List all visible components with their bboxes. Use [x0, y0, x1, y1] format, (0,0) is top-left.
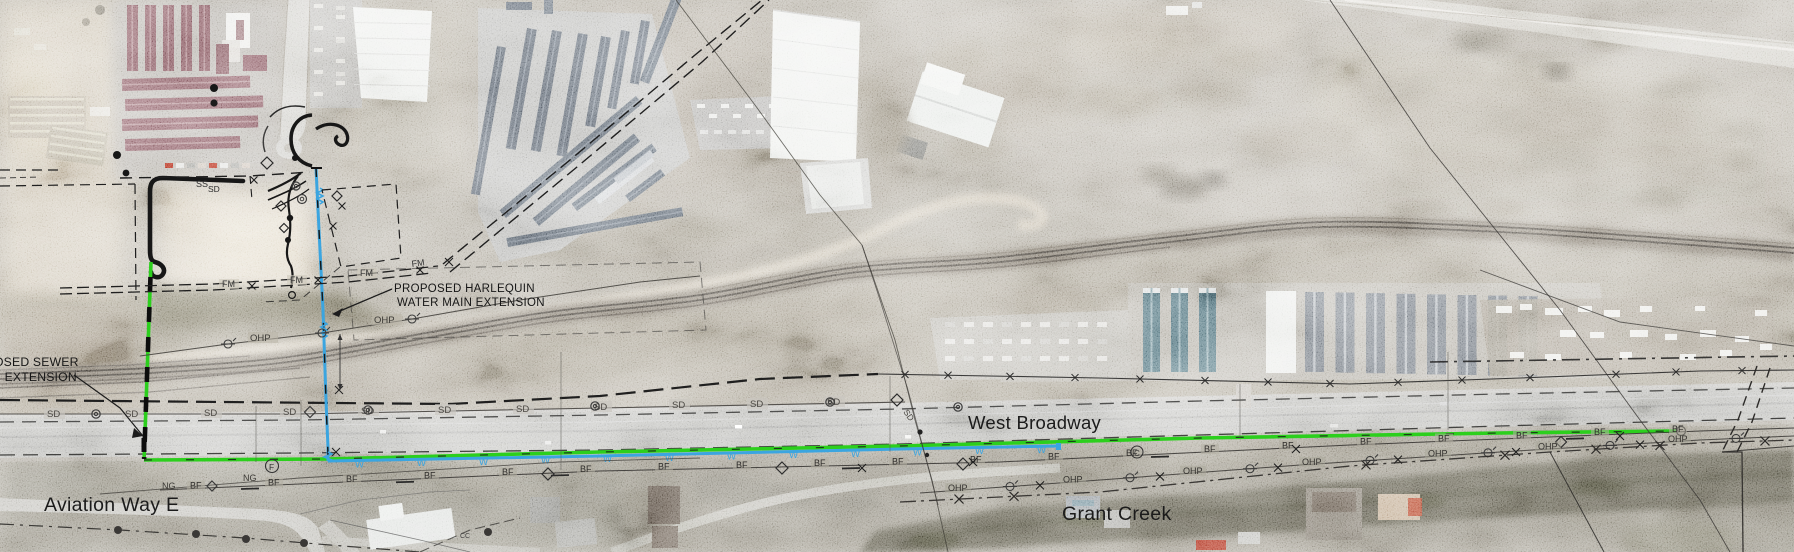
svg-text:FM: FM — [360, 268, 373, 278]
svg-text:BF: BF — [1438, 433, 1450, 443]
svg-text:BF: BF — [1594, 427, 1606, 437]
svg-text:BF: BF — [1048, 452, 1060, 462]
svg-text:BF: BF — [346, 474, 358, 484]
svg-text:W: W — [913, 447, 922, 458]
svg-text:BF: BF — [268, 477, 280, 487]
svg-text:SD: SD — [47, 409, 60, 420]
svg-text:OSED SEWER: OSED SEWER — [0, 355, 79, 369]
svg-text:WATER MAIN EXTENSION: WATER MAIN EXTENSION — [397, 297, 545, 309]
svg-text:NG: NG — [243, 473, 257, 483]
svg-text:FM: FM — [290, 275, 303, 285]
svg-text:N EXTENSION: N EXTENSION — [0, 370, 77, 384]
svg-text:SD: SD — [438, 405, 451, 416]
svg-text:SS: SS — [196, 179, 208, 189]
svg-text:CC: CC — [460, 533, 470, 540]
svg-text:OHP: OHP — [1063, 475, 1083, 485]
svg-text:Aviation Way E: Aviation Way E — [44, 494, 179, 516]
svg-text:BF: BF — [190, 481, 202, 491]
svg-text:F: F — [269, 462, 274, 472]
svg-text:OHP: OHP — [1428, 449, 1448, 459]
svg-text:Grant Creek: Grant Creek — [1062, 503, 1172, 525]
svg-text:BF: BF — [502, 467, 514, 477]
svg-text:BF: BF — [1204, 444, 1216, 454]
svg-text:BF: BF — [424, 471, 436, 481]
svg-text:OHP: OHP — [250, 333, 271, 344]
svg-text:BF: BF — [1672, 424, 1684, 434]
svg-text:W: W — [603, 454, 612, 465]
svg-text:BF: BF — [658, 462, 670, 472]
svg-text:OHP: OHP — [1302, 457, 1322, 467]
svg-text:SD: SD — [750, 399, 763, 410]
svg-text:SD: SD — [204, 408, 217, 419]
svg-text:OHP: OHP — [948, 483, 968, 493]
svg-text:BF: BF — [580, 464, 592, 474]
svg-text:West Broadway: West Broadway — [968, 412, 1102, 433]
svg-text:OHP: OHP — [1183, 466, 1203, 476]
svg-text:W: W — [541, 455, 550, 466]
svg-text:W: W — [789, 450, 798, 461]
svg-text:W: W — [1037, 445, 1046, 456]
svg-text:BF: BF — [892, 456, 904, 466]
svg-text:OHP: OHP — [1668, 434, 1688, 444]
svg-text:BF: BF — [736, 460, 748, 470]
svg-text:SD: SD — [672, 400, 685, 411]
svg-text:W: W — [851, 449, 860, 460]
svg-text:SD: SD — [125, 409, 138, 420]
svg-text:SD: SD — [516, 404, 529, 415]
svg-text:C: C — [1134, 449, 1140, 458]
svg-text:FM: FM — [222, 279, 235, 289]
svg-text:BF: BF — [1516, 430, 1528, 440]
svg-text:SD: SD — [283, 407, 296, 418]
svg-text:BF: BF — [814, 458, 826, 468]
svg-text:BF: BF — [1360, 437, 1372, 447]
svg-text:OHP: OHP — [374, 315, 395, 326]
svg-text:PROPOSED HARLEQUIN: PROPOSED HARLEQUIN — [394, 283, 535, 295]
svg-text:OHP: OHP — [1538, 442, 1558, 452]
svg-text:W: W — [417, 458, 426, 469]
svg-text:SD: SD — [208, 184, 220, 194]
svg-text:W: W — [355, 459, 364, 470]
